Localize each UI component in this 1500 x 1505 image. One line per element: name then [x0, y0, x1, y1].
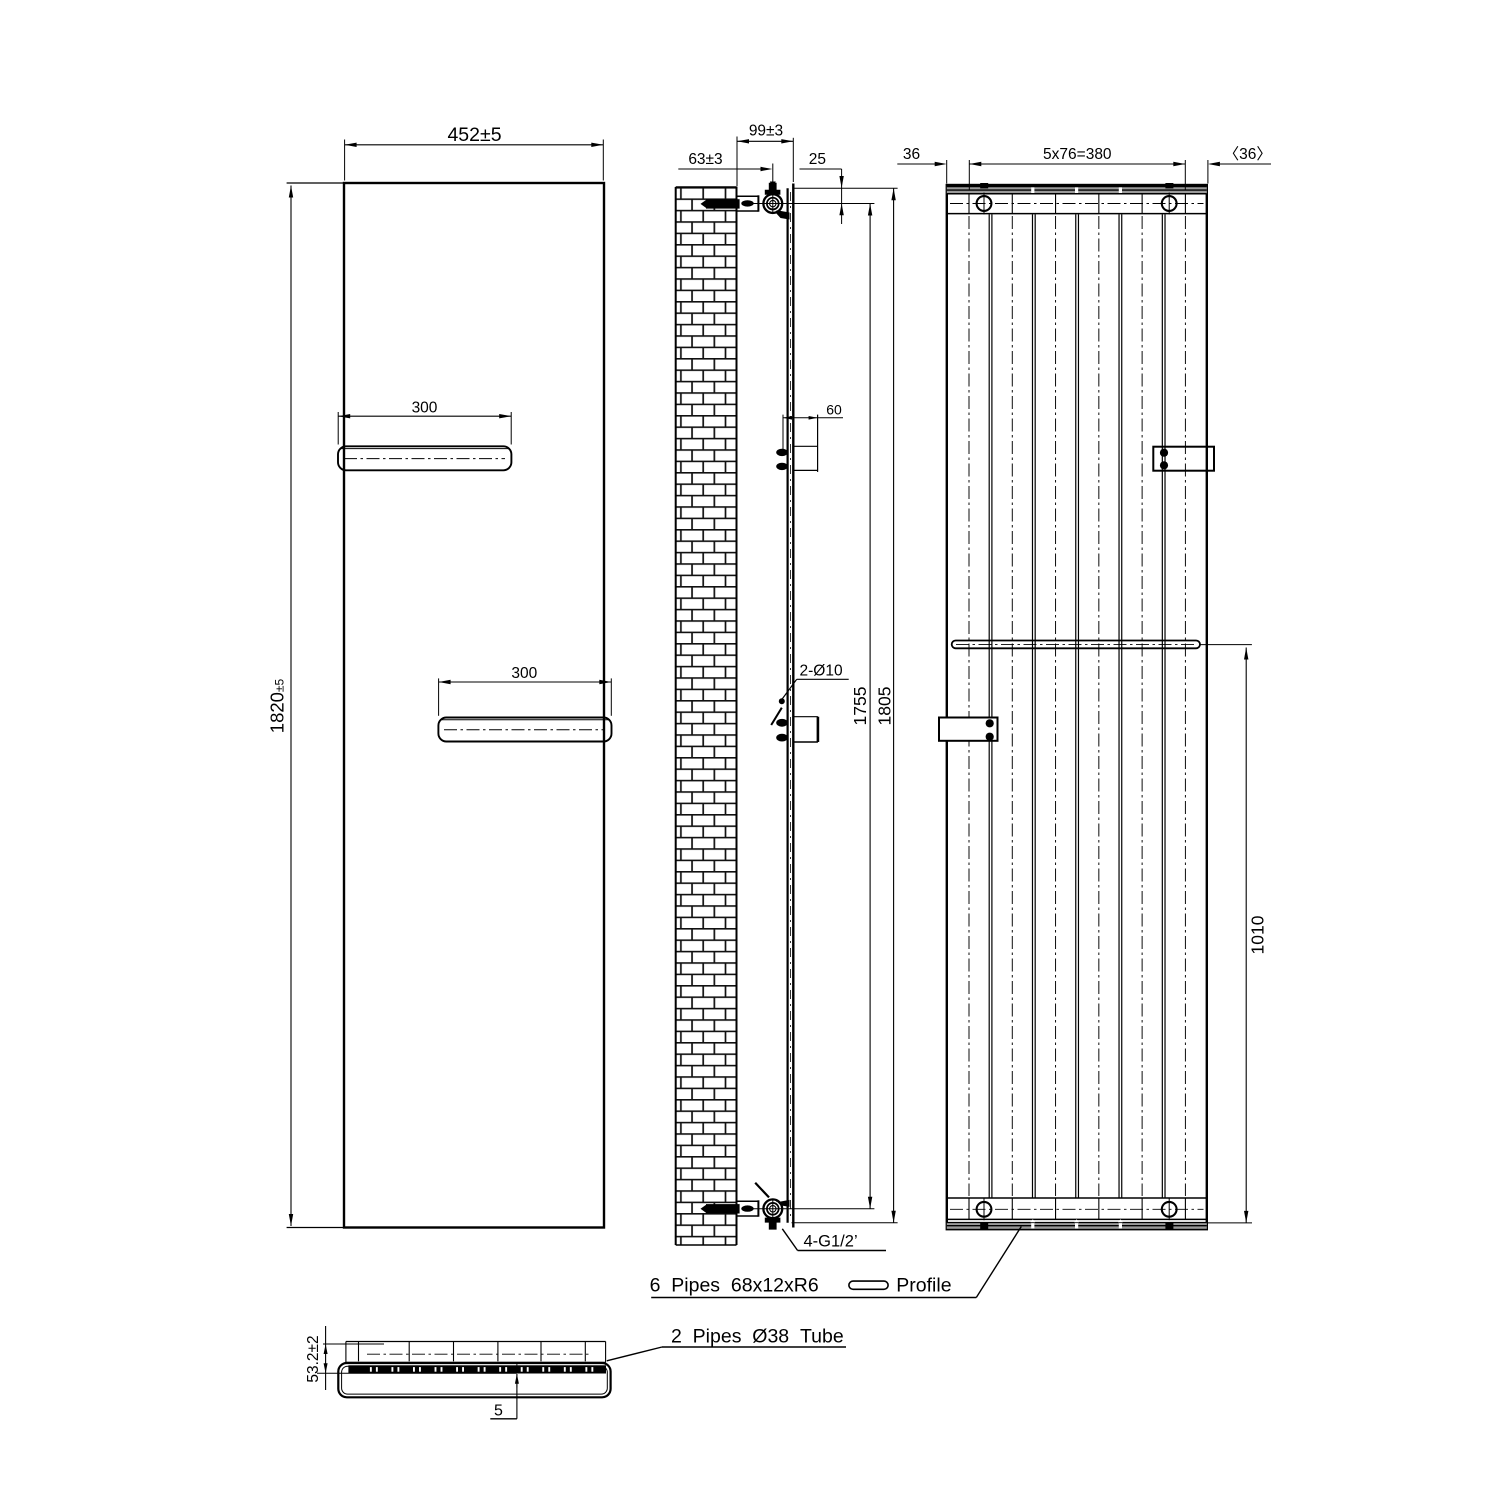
svg-text:300: 300 — [511, 665, 537, 682]
svg-text:Profile: Profile — [896, 1275, 951, 1297]
svg-text:53.2±2: 53.2±2 — [305, 1335, 322, 1382]
svg-text:63±3: 63±3 — [688, 151, 722, 168]
svg-text:60: 60 — [826, 401, 842, 417]
svg-text:1805: 1805 — [875, 687, 895, 726]
svg-text:2-Ø10: 2-Ø10 — [800, 662, 843, 679]
svg-text:5x76=380: 5x76=380 — [1043, 146, 1112, 163]
svg-text:〈36〉: 〈36〉 — [1224, 146, 1272, 163]
svg-text:36: 36 — [903, 146, 920, 163]
svg-text:2 Pipes Ø38 Tube: 2 Pipes Ø38 Tube — [671, 1326, 844, 1348]
svg-text:4-G1/2’: 4-G1/2’ — [804, 1232, 858, 1250]
svg-text:300: 300 — [412, 399, 438, 416]
svg-text:452±5: 452±5 — [447, 124, 501, 146]
svg-text:99±3: 99±3 — [749, 123, 783, 140]
svg-text:1755: 1755 — [850, 687, 870, 726]
svg-text:25: 25 — [809, 151, 826, 168]
svg-text:5: 5 — [494, 1403, 503, 1420]
svg-text:1010: 1010 — [1248, 915, 1268, 954]
svg-text:6 Pipes 68x12xR6: 6 Pipes 68x12xR6 — [650, 1275, 819, 1297]
